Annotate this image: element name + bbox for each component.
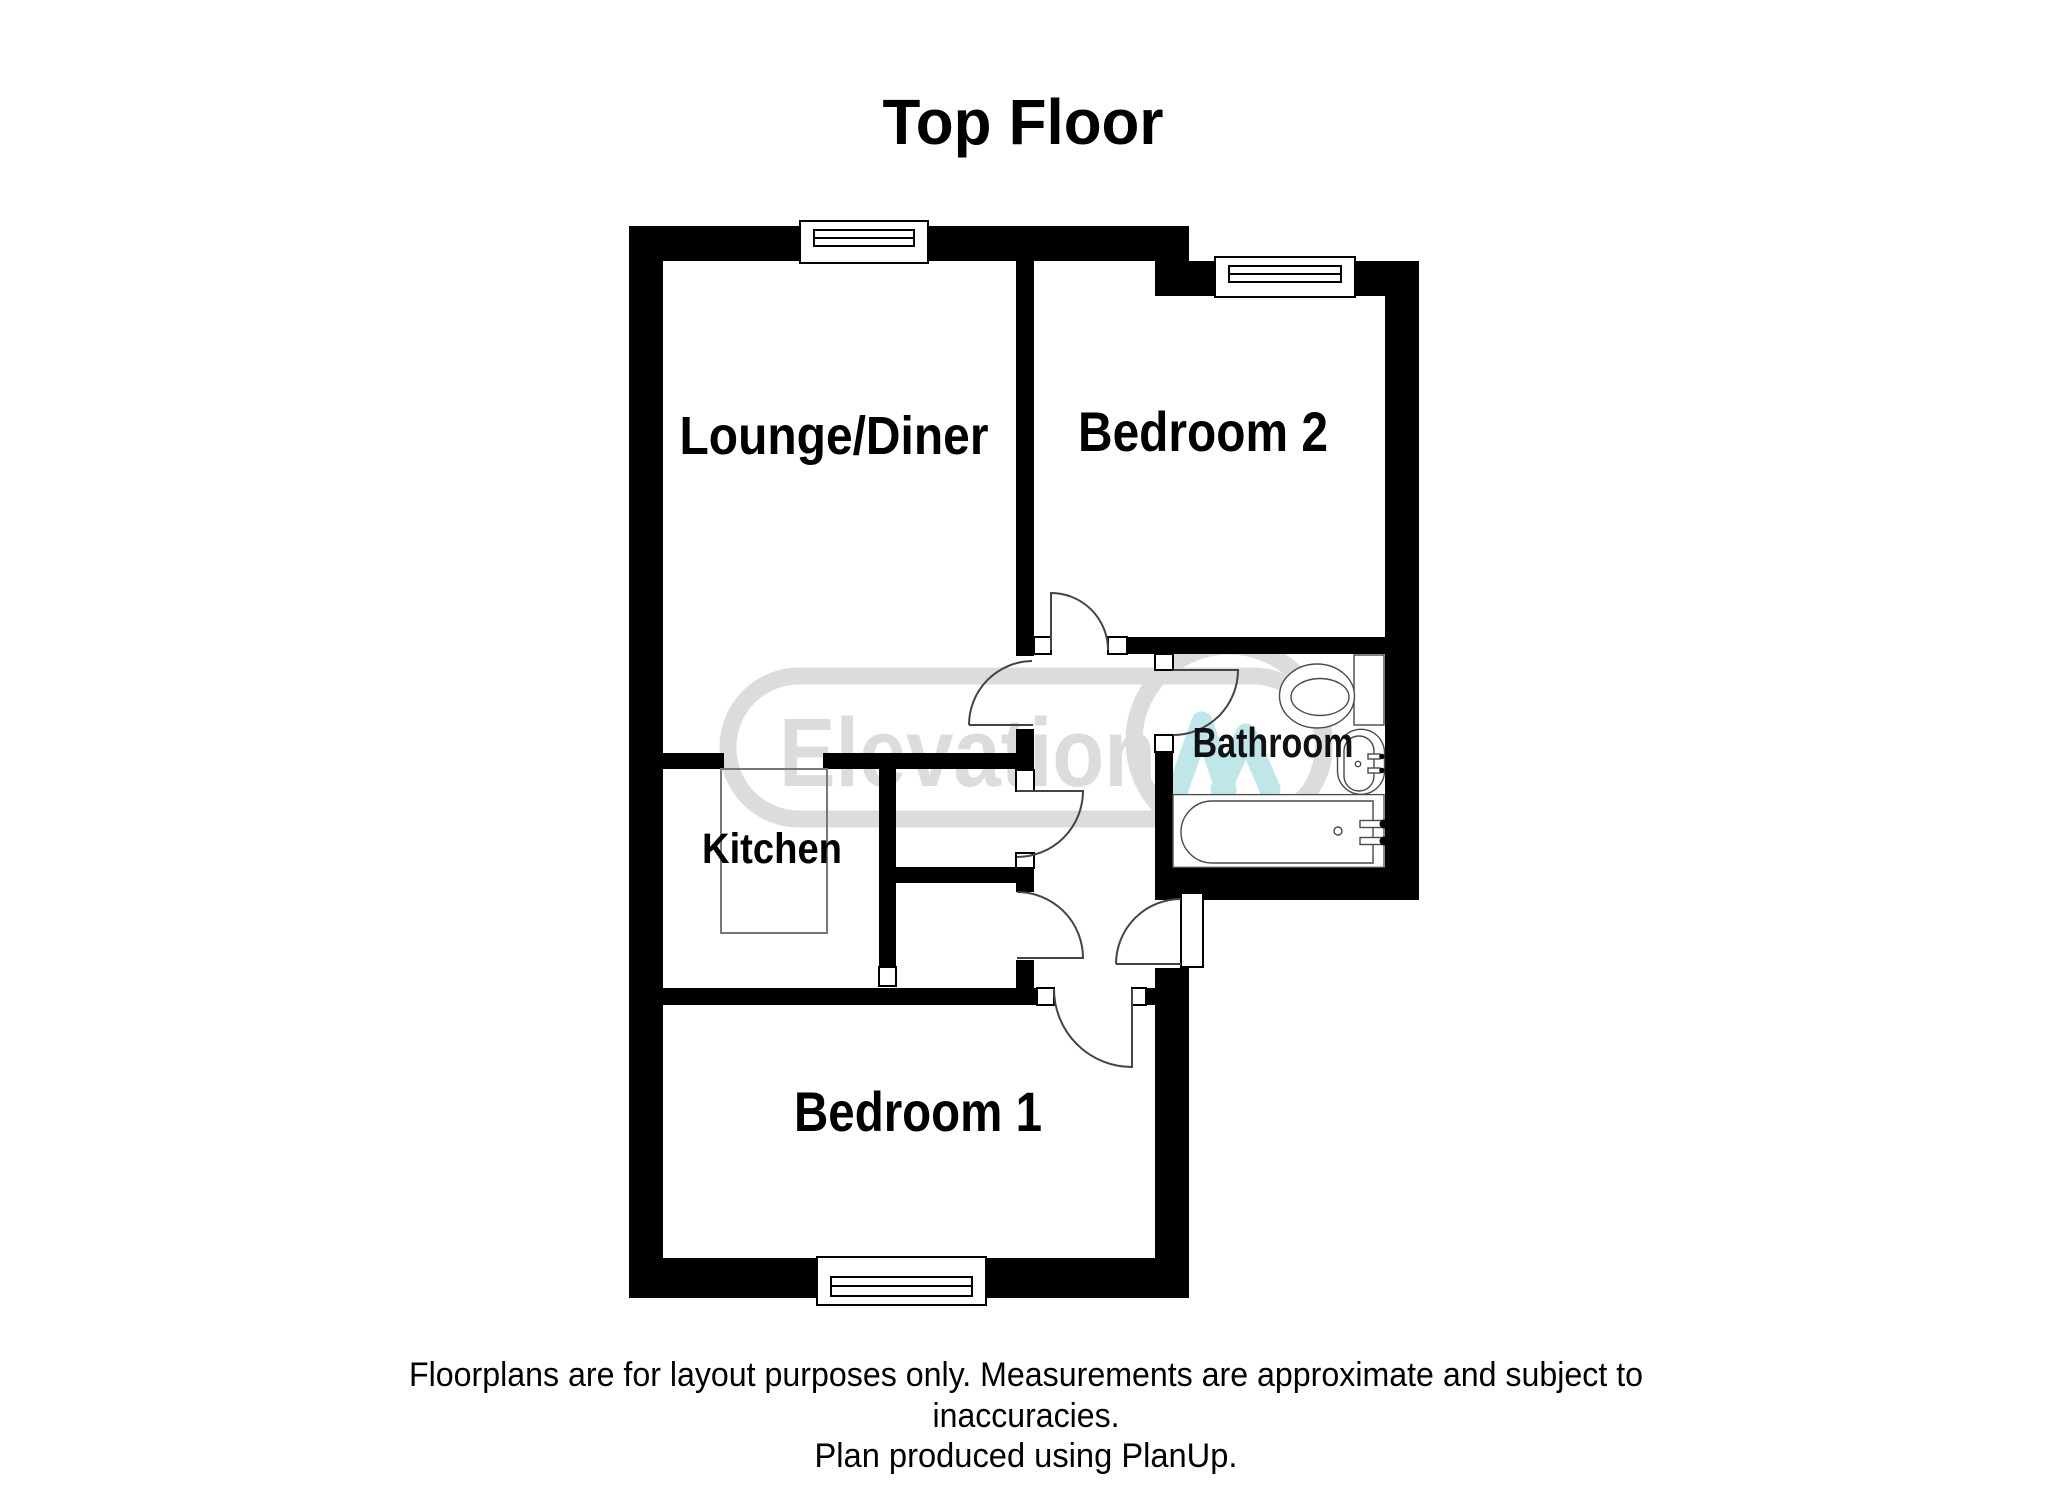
svg-text:Bedroom 1: Bedroom 1 bbox=[794, 1080, 1042, 1143]
svg-text:Bedroom 2: Bedroom 2 bbox=[1078, 400, 1328, 463]
svg-text:Plan produced using PlanUp.: Plan produced using PlanUp. bbox=[815, 1437, 1238, 1475]
svg-text:Floorplans are for layout purp: Floorplans are for layout purposes only.… bbox=[409, 1356, 1643, 1394]
svg-text:Bathroom: Bathroom bbox=[1193, 719, 1354, 766]
svg-text:Kitchen: Kitchen bbox=[702, 825, 842, 873]
svg-text:Lounge/Diner: Lounge/Diner bbox=[680, 406, 989, 466]
svg-text:Top Floor: Top Floor bbox=[883, 86, 1164, 158]
svg-text:inaccuracies.: inaccuracies. bbox=[933, 1397, 1120, 1435]
svg-text:Elevation: Elevation bbox=[779, 698, 1156, 807]
